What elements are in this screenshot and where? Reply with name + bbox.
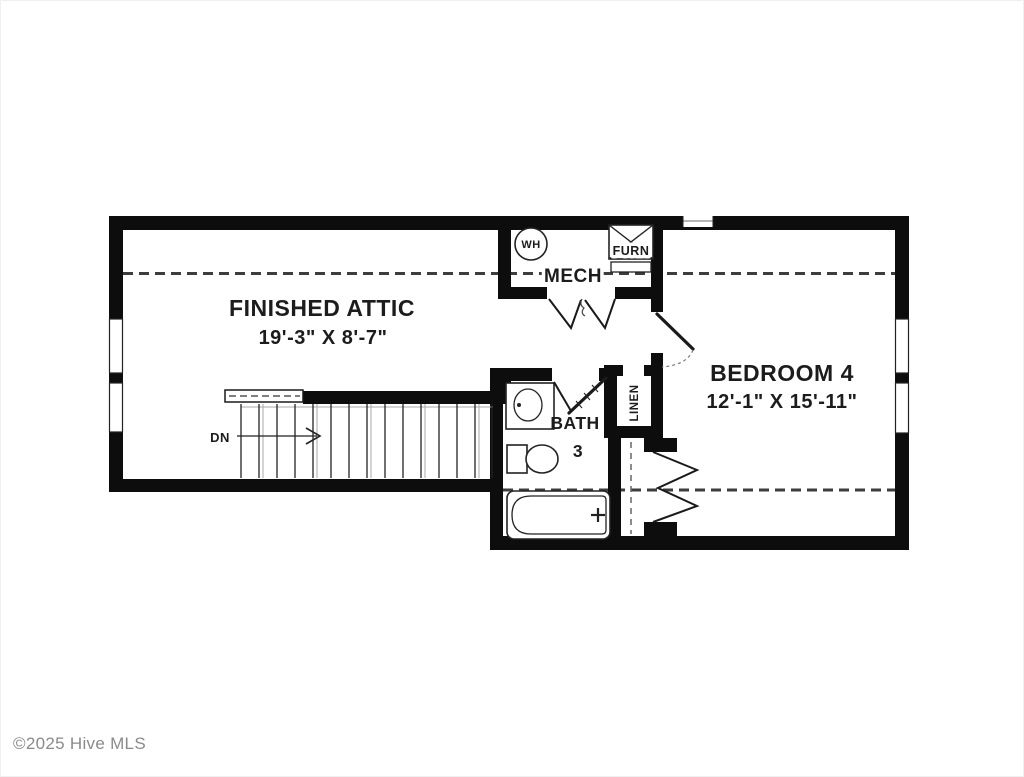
linen-top-wall-right (644, 365, 663, 376)
bedroom-right-window-lower (896, 383, 909, 433)
bath-room-label: BATH (550, 413, 599, 433)
attic-bottom-wall (109, 479, 503, 492)
linen-closet-label: LINEN (629, 385, 641, 422)
bedroom-room-label: BEDROOM 4 (710, 360, 854, 386)
water-heater-label: WH (521, 239, 540, 251)
mech-left-wall (498, 216, 511, 298)
stair-top-wall (303, 391, 511, 404)
closet-jamb-top (644, 438, 677, 452)
furnace-label: FURN (613, 244, 650, 258)
bath-top-wall-left (490, 368, 552, 381)
attic-dimensions-label: 19'-3" X 8'-7" (259, 327, 388, 349)
mech-room-label: MECH (544, 266, 602, 287)
floor-plan-drawing: FINISHED ATTIC 19'-3" X 8'-7" BEDROOM 4 … (1, 1, 1024, 777)
mech-bifold-doors (549, 299, 615, 328)
linen-top-wall-left (604, 365, 623, 376)
toilet-symbol (507, 445, 558, 473)
bathtub-symbol (507, 491, 610, 539)
stair-railing (225, 390, 303, 402)
mech-bottom-wall-left (498, 287, 547, 299)
floor-plan-page: FINISHED ATTIC 19'-3" X 8'-7" BEDROOM 4 … (0, 0, 1024, 777)
mls-copyright-watermark: ©2025 Hive MLS (13, 734, 146, 753)
linen-bottom-wall (604, 426, 663, 438)
bedroom-dimensions-label: 12'-1" X 15'-11" (706, 391, 857, 413)
closet-bifold-doors (653, 452, 697, 522)
bath-door-swing (554, 378, 606, 413)
bedroom-right-window-upper (896, 319, 909, 373)
attic-room-label: FINISHED ATTIC (229, 295, 415, 321)
bath-fixtures (506, 383, 610, 539)
bath-number-label: 3 (573, 441, 583, 461)
bedroom-top-window (683, 216, 713, 227)
sink-vanity-symbol (506, 383, 554, 429)
dn-direction-arrow (237, 428, 320, 444)
attic-left-window-lower (110, 383, 123, 432)
stairs-down-label: DN (210, 430, 230, 445)
closet-jamb-bottom (644, 522, 677, 536)
attic-left-window-upper (110, 319, 123, 373)
